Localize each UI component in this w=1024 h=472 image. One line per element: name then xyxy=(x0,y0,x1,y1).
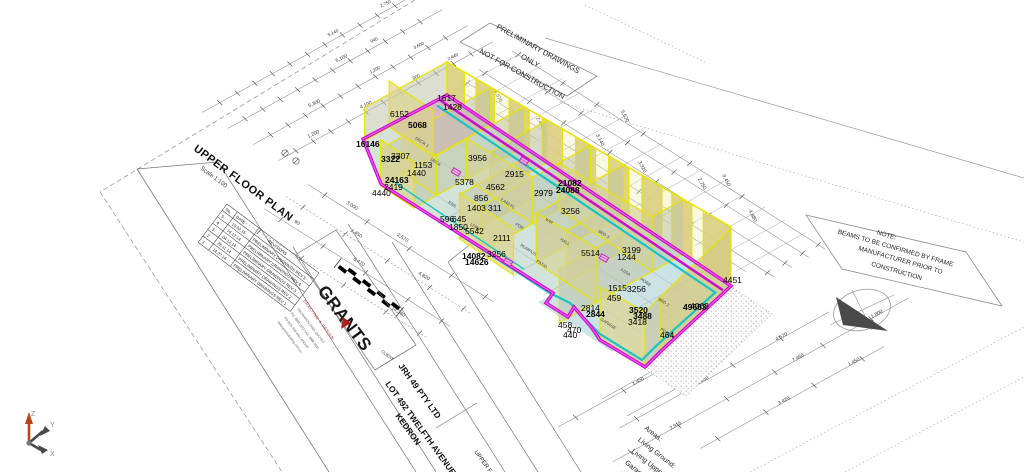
svg-text:Z: Z xyxy=(31,411,36,418)
svg-text:2111: 2111 xyxy=(493,233,511,243)
svg-text:458: 458 xyxy=(558,320,572,330)
svg-text:1440: 1440 xyxy=(407,168,426,178)
svg-text:1403: 1403 xyxy=(467,203,486,213)
svg-text:14626: 14626 xyxy=(465,257,489,267)
svg-text:5068: 5068 xyxy=(408,120,427,130)
svg-text:3307: 3307 xyxy=(391,151,410,161)
svg-text:4562: 4562 xyxy=(486,182,505,192)
svg-text:311: 311 xyxy=(488,203,502,213)
svg-text:3256: 3256 xyxy=(627,284,646,294)
svg-text:1515: 1515 xyxy=(608,283,627,293)
svg-text:5542: 5542 xyxy=(465,226,484,236)
svg-text:5514: 5514 xyxy=(581,248,600,258)
svg-text:4440: 4440 xyxy=(372,188,391,198)
svg-text:4451: 4451 xyxy=(723,275,742,285)
svg-text:2979: 2979 xyxy=(534,188,553,198)
svg-text:464: 464 xyxy=(660,330,674,340)
svg-text:3256: 3256 xyxy=(487,249,506,259)
svg-text:1428: 1428 xyxy=(443,102,462,112)
svg-text:3256: 3256 xyxy=(561,206,580,216)
svg-text:49653: 49653 xyxy=(683,302,707,312)
svg-text:440: 440 xyxy=(563,330,577,340)
svg-text:2844: 2844 xyxy=(586,309,605,319)
svg-text:3956: 3956 xyxy=(468,153,487,163)
svg-text:24088: 24088 xyxy=(556,185,580,195)
svg-text:16146: 16146 xyxy=(356,139,380,149)
svg-text:X: X xyxy=(50,451,55,458)
svg-text:1244: 1244 xyxy=(617,252,636,262)
svg-text:2915: 2915 xyxy=(505,169,524,179)
svg-text:6152: 6152 xyxy=(390,109,409,119)
svg-text:5378: 5378 xyxy=(455,177,474,187)
svg-text:Y: Y xyxy=(50,422,55,429)
svg-text:856: 856 xyxy=(474,193,488,203)
svg-text:3418: 3418 xyxy=(628,317,647,327)
svg-text:459: 459 xyxy=(607,293,621,303)
